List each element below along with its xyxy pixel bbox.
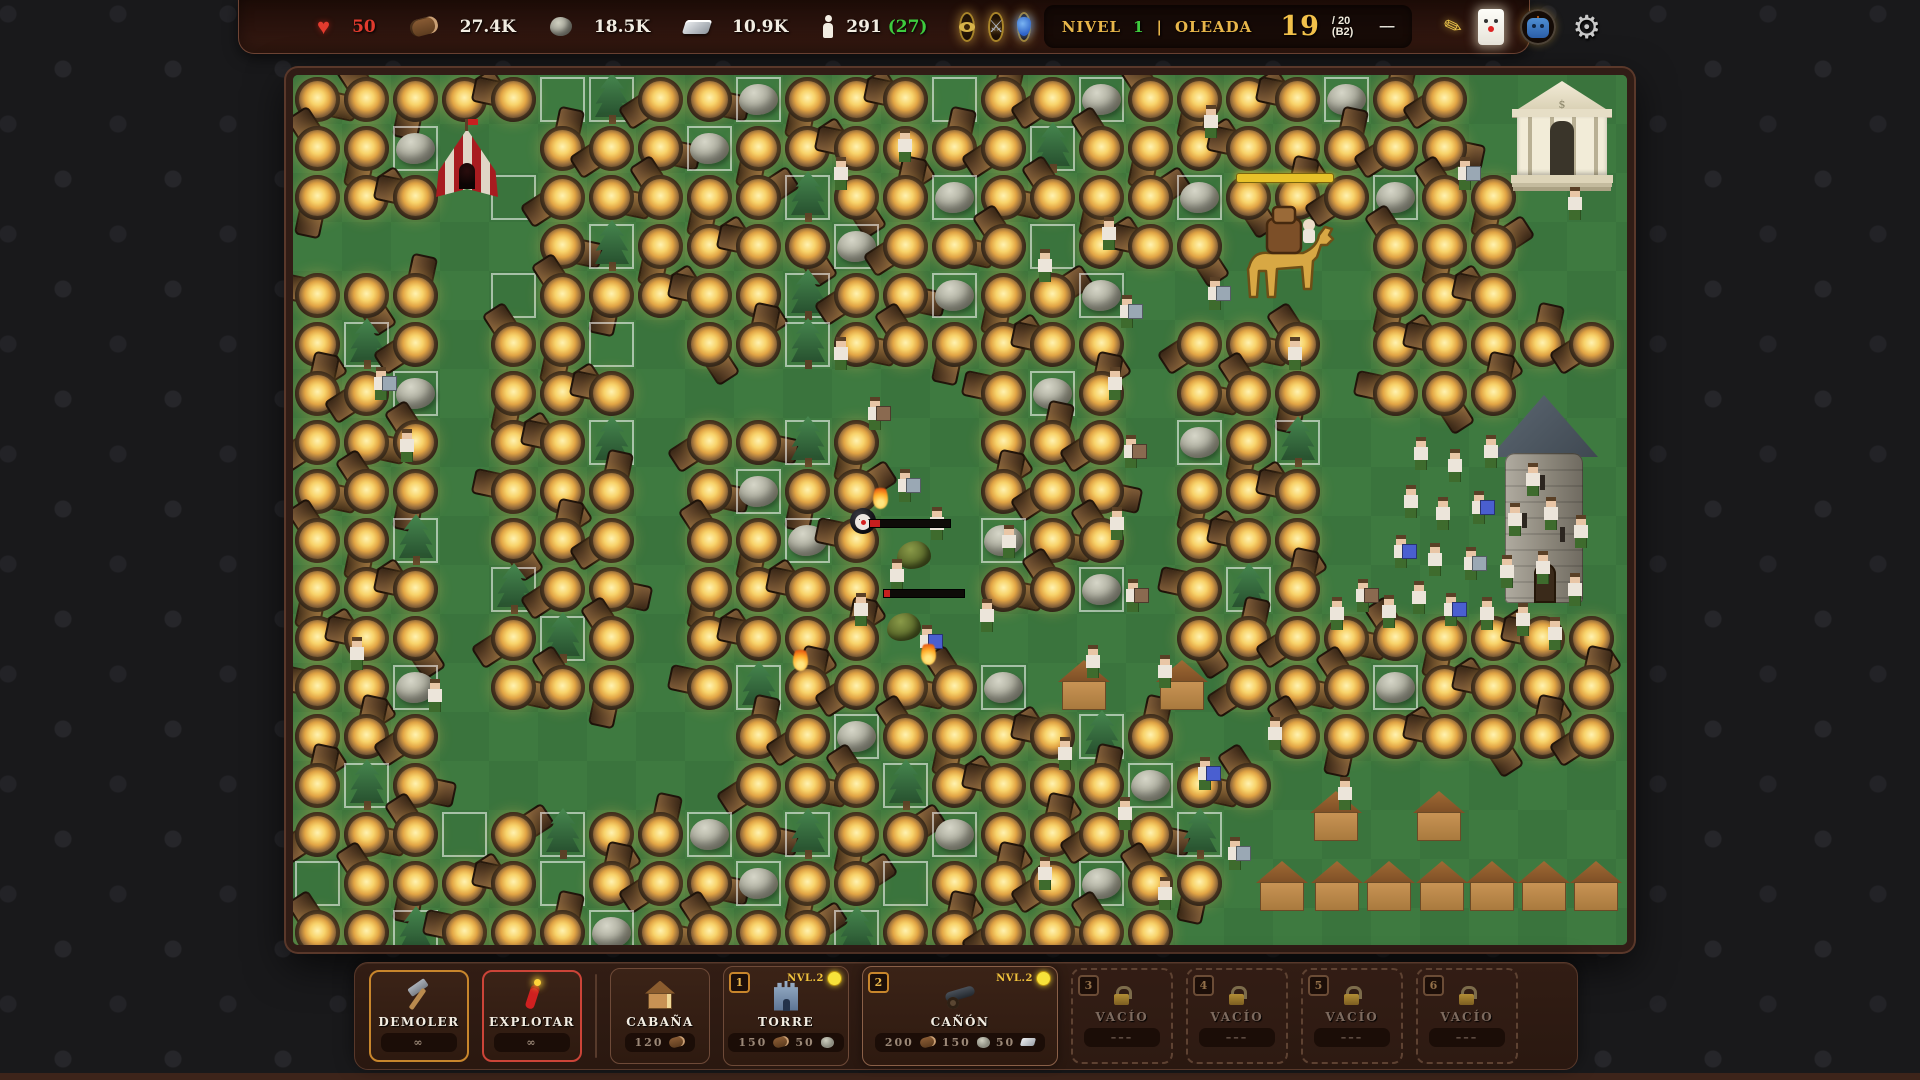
villager: [1157, 655, 1173, 688]
cannon-muzzle-glow: [638, 77, 683, 122]
tree[interactable]: [1179, 808, 1221, 860]
cannon-tower[interactable]: [783, 761, 832, 810]
tree[interactable]: [787, 318, 829, 370]
cannon-tower[interactable]: [881, 222, 930, 271]
eye-buff-icon[interactable]: [959, 12, 975, 42]
cannon-tower[interactable]: [1224, 663, 1273, 712]
cannon-tower[interactable]: [1175, 320, 1224, 369]
cannon-tower[interactable]: [734, 124, 783, 173]
cannon-tower[interactable]: [489, 320, 538, 369]
cannon-tower[interactable]: [489, 908, 538, 945]
clown-card-button[interactable]: [1478, 9, 1504, 45]
cannon-tower[interactable]: [832, 271, 881, 320]
carried-crate: [1236, 846, 1251, 861]
cannon-tower[interactable]: [342, 908, 391, 945]
cannon-tower[interactable]: [1028, 173, 1077, 222]
cannon-tower[interactable]: [930, 712, 979, 761]
locked-slot-3[interactable]: 3VACÍO–––: [1071, 968, 1173, 1064]
cannon-tower[interactable]: [391, 810, 440, 859]
metal-ingot-icon: [682, 20, 713, 34]
cannon-tower[interactable]: [587, 369, 636, 418]
cannon-tower[interactable]: [293, 663, 342, 712]
tree[interactable]: [836, 906, 878, 945]
villager: [1499, 555, 1515, 588]
cannon-tower[interactable]: [1126, 173, 1175, 222]
circus-tent[interactable]: [436, 123, 498, 197]
cannon-tower[interactable]: [1126, 75, 1175, 124]
upgrade-token-icon: [827, 971, 842, 986]
locked-slot-5[interactable]: 5VACÍO–––: [1301, 968, 1403, 1064]
rock[interactable]: [739, 84, 778, 115]
tree[interactable]: [885, 759, 927, 811]
cannon-tower[interactable]: [734, 810, 783, 859]
rock[interactable]: [592, 917, 631, 945]
rock[interactable]: [1131, 770, 1170, 801]
wood-log-icon: [919, 1035, 937, 1049]
cannon-tower[interactable]: [734, 516, 783, 565]
cannon-muzzle-glow: [491, 469, 536, 514]
villager: [1037, 857, 1053, 890]
cannon-tower[interactable]: [489, 614, 538, 663]
cannon-tower[interactable]: [783, 222, 832, 271]
villager-body: [1330, 607, 1344, 620]
cannon-tower[interactable]: [1273, 467, 1322, 516]
cannon-tower[interactable]: [1224, 418, 1273, 467]
map-cell: [293, 124, 342, 173]
map-cell: [293, 565, 342, 614]
cannon-tower[interactable]: [342, 75, 391, 124]
cannon-tower[interactable]: [685, 565, 734, 614]
cannon-tower[interactable]: [1371, 124, 1420, 173]
cannon-tower[interactable]: [489, 859, 538, 908]
map-cell: [489, 75, 538, 124]
cannon-muzzle-glow: [785, 469, 830, 514]
cannon-tower[interactable]: [783, 467, 832, 516]
cannon-tower[interactable]: [930, 663, 979, 712]
map-cell: [783, 761, 832, 810]
cannon-tower[interactable]: [440, 908, 489, 945]
cannon-tower[interactable]: [1126, 222, 1175, 271]
villager-head: [892, 559, 902, 569]
cannon-tower[interactable]: [293, 761, 342, 810]
cannon-tower[interactable]: [293, 516, 342, 565]
villager-legs: [1331, 620, 1343, 630]
buildable-cell[interactable]: [440, 810, 489, 859]
tree[interactable]: [787, 808, 829, 860]
cannon-tower[interactable]: [1028, 908, 1077, 945]
cannon-tower[interactable]: [881, 173, 930, 222]
villager-head: [1270, 717, 1280, 727]
rock[interactable]: [984, 672, 1023, 703]
crossed-swords-icon: ⚔: [988, 17, 1003, 37]
villager: [1107, 367, 1123, 400]
health-bar: [869, 519, 951, 528]
cannon-tower[interactable]: [1273, 565, 1322, 614]
rock[interactable]: [1082, 280, 1121, 311]
cannon-tower[interactable]: [342, 271, 391, 320]
cannon-tower[interactable]: [979, 761, 1028, 810]
cannon-tower[interactable]: [881, 712, 930, 761]
cannon-tower[interactable]: [342, 859, 391, 908]
cannon-tower[interactable]: [930, 222, 979, 271]
villager: [889, 559, 905, 592]
locked-slot-6[interactable]: 6VACÍO–––: [1416, 968, 1518, 1064]
cannon-tower[interactable]: [391, 75, 440, 124]
cannon-tower[interactable]: [587, 271, 636, 320]
cannon-tower[interactable]: [734, 222, 783, 271]
cannon-muzzle-glow: [687, 273, 732, 318]
stone-icon: [977, 1037, 990, 1048]
cannon-tower[interactable]: [1224, 124, 1273, 173]
villager: [1435, 497, 1451, 530]
rock[interactable]: [1376, 672, 1415, 703]
rock[interactable]: [739, 868, 778, 899]
cannon-tower[interactable]: [979, 369, 1028, 418]
cannon-tower[interactable]: [1126, 908, 1175, 945]
explotar-button[interactable]: EXPLOTAR∞: [482, 970, 582, 1062]
rock[interactable]: [1180, 427, 1219, 458]
cost-pill: 20015050: [875, 1033, 1045, 1052]
urn-buff-icon[interactable]: [1017, 12, 1031, 42]
tree[interactable]: [346, 759, 388, 811]
map-cell: [342, 75, 391, 124]
cannon-tower[interactable]: [391, 565, 440, 614]
cannon-tower[interactable]: [1175, 222, 1224, 271]
cannon-tower[interactable]: [1175, 565, 1224, 614]
cannon-tower[interactable]: [1028, 467, 1077, 516]
cannon-tower[interactable]: [1371, 271, 1420, 320]
cannon-tower[interactable]: [636, 222, 685, 271]
villager-head: [1416, 437, 1426, 447]
cannon-tower[interactable]: [587, 173, 636, 222]
cannon-tower[interactable]: [1126, 712, 1175, 761]
build-card-torre[interactable]: 1NVL.2TORRE15050: [723, 966, 849, 1066]
cannon-tower[interactable]: [538, 663, 587, 712]
cannon-tower[interactable]: [734, 908, 783, 945]
rock[interactable]: [935, 819, 974, 850]
cabin[interactable]: [1311, 861, 1363, 913]
map-cell: [832, 663, 881, 712]
cannon-tower[interactable]: [489, 663, 538, 712]
cannon-tower[interactable]: [685, 516, 734, 565]
cannon-tower[interactable]: [734, 418, 783, 467]
villager-body: [1536, 561, 1550, 574]
map-cell: [293, 908, 342, 945]
wave-panel: NIVEL 1 | OLEADA 19 / 20 (B2) ––: [1044, 5, 1412, 48]
cannon-tower[interactable]: [538, 565, 587, 614]
cabin[interactable]: [1466, 861, 1518, 913]
cannon-tower[interactable]: [1371, 369, 1420, 418]
cannon-tower[interactable]: [685, 663, 734, 712]
map-cell: [783, 173, 832, 222]
cabin[interactable]: [1058, 660, 1110, 712]
villager-head: [1160, 877, 1170, 887]
cannon-tower[interactable]: [489, 75, 538, 124]
cannon-tower[interactable]: [391, 271, 440, 320]
cannon-tower[interactable]: [979, 124, 1028, 173]
tree[interactable]: [1277, 416, 1319, 468]
cannon-tower[interactable]: [293, 565, 342, 614]
cannon-tower[interactable]: [1420, 222, 1469, 271]
cannon-tower[interactable]: [636, 75, 685, 124]
villager: [1543, 497, 1559, 530]
cannon-tower[interactable]: [685, 173, 734, 222]
cannon-tower[interactable]: [1224, 761, 1273, 810]
cannon-tower[interactable]: [1077, 418, 1126, 467]
cannon-tower[interactable]: [1077, 908, 1126, 945]
cannon-tower[interactable]: [685, 320, 734, 369]
map-cell: [489, 614, 538, 663]
villager: [1123, 435, 1139, 468]
tree[interactable]: [395, 514, 437, 566]
map-cell: [1126, 124, 1175, 173]
rock[interactable]: [690, 819, 729, 850]
cannon-tower[interactable]: [587, 124, 636, 173]
cannon-tower[interactable]: [587, 614, 636, 663]
villager-legs: [1039, 880, 1051, 890]
cannon-tower[interactable]: [734, 320, 783, 369]
rock[interactable]: [396, 133, 435, 164]
cannon-tower[interactable]: [1469, 663, 1518, 712]
cannon-tower[interactable]: [293, 810, 342, 859]
cabin[interactable]: [1570, 861, 1622, 913]
cannon-tower[interactable]: [783, 565, 832, 614]
cannon-tower[interactable]: [1028, 75, 1077, 124]
cannon-tower[interactable]: [685, 75, 734, 124]
temple-base: [1511, 175, 1613, 183]
tree[interactable]: [787, 416, 829, 468]
cannon-tower[interactable]: [832, 761, 881, 810]
cannon-tower[interactable]: [538, 418, 587, 467]
cabin[interactable]: [1256, 861, 1308, 913]
cannon-tower[interactable]: [293, 418, 342, 467]
quill-button[interactable]: ✎: [1440, 11, 1466, 42]
cannon-tower[interactable]: [636, 908, 685, 945]
cannon-tower[interactable]: [783, 908, 832, 945]
cannon-tower[interactable]: [342, 516, 391, 565]
map-cell: [685, 908, 734, 945]
cannon-tower[interactable]: [342, 467, 391, 516]
cannon-tower[interactable]: [538, 271, 587, 320]
cannon-tower[interactable]: [391, 467, 440, 516]
map-cell: [1077, 173, 1126, 222]
cannon-tower[interactable]: [489, 467, 538, 516]
map-cell: [1126, 173, 1175, 222]
cannon-tower[interactable]: [881, 75, 930, 124]
buildable-cell[interactable]: [881, 859, 930, 908]
cannon-tower[interactable]: [1028, 565, 1077, 614]
map-cell: [783, 222, 832, 271]
cannon-tower[interactable]: [1028, 320, 1077, 369]
cannon-tower[interactable]: [1175, 369, 1224, 418]
cannon-tower[interactable]: [1469, 712, 1518, 761]
cannon-tower[interactable]: [783, 75, 832, 124]
cannon-tower[interactable]: [1224, 369, 1273, 418]
cannon-muzzle-glow: [687, 322, 732, 367]
build-card-canon[interactable]: 2NVL.2CAÑÓN20015050: [862, 966, 1058, 1066]
cannon-tower[interactable]: [1077, 173, 1126, 222]
cannon-tower[interactable]: [1567, 663, 1616, 712]
villager-head: [1576, 515, 1586, 525]
rock[interactable]: [690, 133, 729, 164]
cannon-tower[interactable]: [685, 908, 734, 945]
cannon-tower[interactable]: [587, 467, 636, 516]
map-cell: [391, 124, 440, 173]
map-cell: [1224, 369, 1273, 418]
villager-body: [1058, 747, 1072, 760]
cannon-tower[interactable]: [1469, 222, 1518, 271]
cannon-tower[interactable]: [1567, 320, 1616, 369]
cannon-tower[interactable]: [1077, 124, 1126, 173]
robot-button[interactable]: [1520, 9, 1556, 45]
cannon-tower[interactable]: [1420, 712, 1469, 761]
map-cell: [685, 75, 734, 124]
cannon-tower[interactable]: [636, 173, 685, 222]
cannon-tower[interactable]: [489, 810, 538, 859]
cannon-tower[interactable]: [293, 271, 342, 320]
rock[interactable]: [1082, 574, 1121, 605]
villager: [1507, 503, 1523, 536]
cannon-tower[interactable]: [832, 859, 881, 908]
swords-buff-icon[interactable]: ⚔: [988, 12, 1003, 42]
cannon-tower[interactable]: [391, 712, 440, 761]
villager: [1267, 717, 1283, 750]
villager-body: [1404, 495, 1418, 508]
cannon-tower[interactable]: [538, 173, 587, 222]
cannon-muzzle-glow: [1275, 371, 1320, 416]
cabin[interactable]: [1413, 791, 1465, 843]
cannon-tower[interactable]: [587, 663, 636, 712]
cannon-tower[interactable]: [293, 173, 342, 222]
cannon-tower[interactable]: [1371, 222, 1420, 271]
settings-gear-button[interactable]: ⚙: [1572, 11, 1601, 43]
cannon-tower[interactable]: [1420, 320, 1469, 369]
villager-body: [1480, 607, 1494, 620]
cannon-tower[interactable]: [1175, 614, 1224, 663]
villager: [1463, 547, 1479, 580]
cannon-tower[interactable]: [881, 320, 930, 369]
cannon-tower[interactable]: [832, 663, 881, 712]
cannon-tower[interactable]: [1420, 369, 1469, 418]
cannon-tower[interactable]: [391, 859, 440, 908]
villager: [1119, 295, 1135, 328]
cannon-tower[interactable]: [734, 173, 783, 222]
map-cell: [1028, 908, 1077, 945]
buildable-cell[interactable]: [587, 320, 636, 369]
temple-building[interactable]: $: [1515, 81, 1609, 193]
cannon-tower[interactable]: [1469, 271, 1518, 320]
tree[interactable]: [542, 808, 584, 860]
cannon-muzzle-glow: [736, 420, 781, 465]
cannon-tower[interactable]: [930, 320, 979, 369]
skip-wave-icon[interactable]: ––: [1379, 18, 1394, 35]
cannon-tower[interactable]: [342, 124, 391, 173]
villager: [897, 469, 913, 502]
cannon-muzzle-glow: [1422, 714, 1467, 759]
map-cell: [1175, 369, 1224, 418]
wood-value: 27.4K: [460, 17, 516, 37]
cannon-muzzle-glow: [883, 322, 928, 367]
cannon-tower[interactable]: [734, 761, 783, 810]
villager: [1525, 463, 1541, 496]
cannon-tower[interactable]: [1126, 124, 1175, 173]
cannon-tower[interactable]: [489, 369, 538, 418]
cannon-tower[interactable]: [979, 222, 1028, 271]
cabin[interactable]: [1310, 791, 1362, 843]
cannon-tower[interactable]: [783, 859, 832, 908]
villager-legs: [899, 152, 911, 162]
cannon-tower[interactable]: [293, 908, 342, 945]
cannon-tower[interactable]: [979, 908, 1028, 945]
cannon-tower[interactable]: [1273, 369, 1322, 418]
cannon-muzzle-glow: [883, 910, 928, 945]
rock[interactable]: [935, 182, 974, 213]
locked-label: VACÍO: [1325, 1010, 1378, 1024]
cannon-tower[interactable]: [783, 712, 832, 761]
carried-crate: [1128, 304, 1143, 319]
cannon-tower[interactable]: [538, 320, 587, 369]
cabin[interactable]: [1363, 861, 1415, 913]
cannon-tower[interactable]: [1322, 712, 1371, 761]
cannon-tower[interactable]: [1273, 614, 1322, 663]
tree[interactable]: [591, 220, 633, 272]
cannon-tower[interactable]: [685, 418, 734, 467]
cabin[interactable]: [1416, 861, 1468, 913]
cannon-icon: [943, 981, 977, 1011]
cannon-tower[interactable]: [391, 614, 440, 663]
cannon-tower[interactable]: [881, 908, 930, 945]
villager-legs: [1517, 626, 1529, 636]
villager-legs: [931, 530, 943, 540]
cannon-tower[interactable]: [1322, 663, 1371, 712]
cannon-tower[interactable]: [391, 320, 440, 369]
cannon-tower[interactable]: [832, 810, 881, 859]
rock[interactable]: [1180, 182, 1219, 213]
cabin[interactable]: [1518, 861, 1570, 913]
cannon-tower[interactable]: [587, 516, 636, 565]
cannon-tower[interactable]: [489, 516, 538, 565]
villager-head: [1510, 503, 1520, 513]
cannon-tower[interactable]: [734, 614, 783, 663]
cannon-tower[interactable]: [1175, 859, 1224, 908]
cannon-tower[interactable]: [685, 271, 734, 320]
cannon-tower[interactable]: [1273, 75, 1322, 124]
cannon-tower[interactable]: [293, 124, 342, 173]
cannon-muzzle-glow: [393, 714, 438, 759]
fire-effect: [873, 485, 888, 509]
locked-slot-4[interactable]: 4VACÍO–––: [1186, 968, 1288, 1064]
cannon-tower[interactable]: [1175, 467, 1224, 516]
rock[interactable]: [935, 280, 974, 311]
cannon-tower[interactable]: [1420, 75, 1469, 124]
rock[interactable]: [739, 476, 778, 507]
cannon-tower[interactable]: [391, 173, 440, 222]
tree[interactable]: [787, 171, 829, 223]
cannon-tower[interactable]: [1567, 712, 1616, 761]
cannon-tower[interactable]: [979, 271, 1028, 320]
build-card-cabana[interactable]: CABAÑA120: [610, 968, 710, 1064]
map-cell: [1322, 663, 1371, 712]
game-map[interactable]: $: [293, 75, 1627, 945]
cannon-tower[interactable]: [538, 908, 587, 945]
cannon-tower[interactable]: [1224, 516, 1273, 565]
cannon-muzzle-glow: [1226, 371, 1271, 416]
demoler-button[interactable]: DEMOLER∞: [369, 970, 469, 1062]
cannon-tower[interactable]: [636, 859, 685, 908]
map-cell: [1224, 761, 1273, 810]
cannon-tower[interactable]: [881, 810, 930, 859]
cannon-tower[interactable]: [636, 810, 685, 859]
